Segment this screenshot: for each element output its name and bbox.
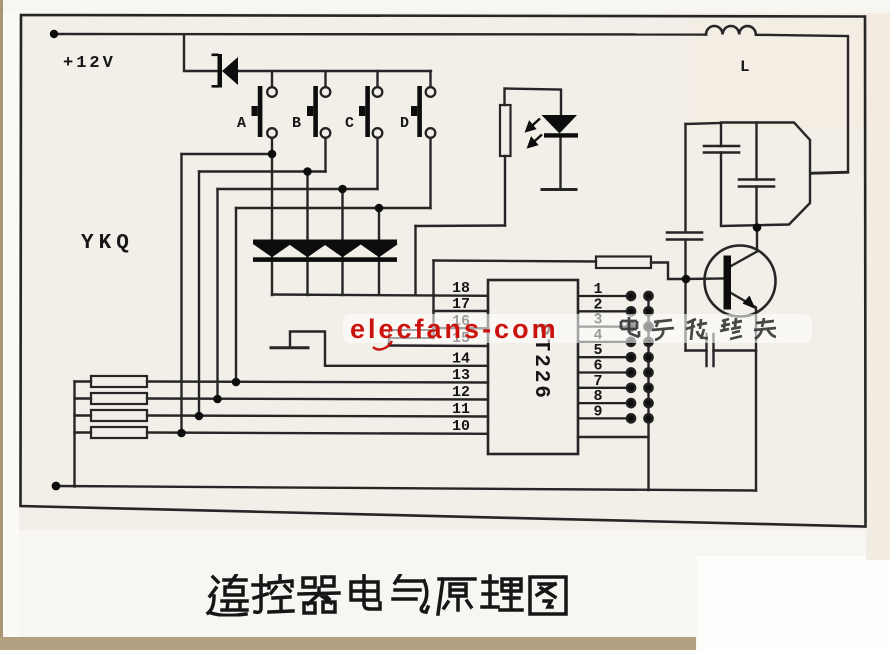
svg-text:YKQ: YKQ — [81, 232, 134, 255]
svg-text:A: A — [237, 115, 246, 132]
svg-text:10: 10 — [452, 418, 470, 435]
svg-text:9: 9 — [593, 403, 602, 420]
svg-text:C: C — [345, 115, 354, 132]
svg-text:18: 18 — [452, 280, 470, 297]
svg-text:+12V: +12V — [63, 54, 116, 73]
svg-text:13: 13 — [452, 367, 470, 384]
svg-text:17: 17 — [452, 296, 470, 313]
svg-text:12: 12 — [452, 384, 470, 401]
svg-text:B: B — [292, 115, 301, 132]
svg-text:14: 14 — [452, 351, 470, 368]
svg-text:D: D — [400, 115, 409, 132]
svg-text:elecfans-com: elecfans-com — [350, 314, 559, 344]
svg-text:11: 11 — [452, 401, 470, 418]
svg-text:L: L — [740, 58, 750, 76]
